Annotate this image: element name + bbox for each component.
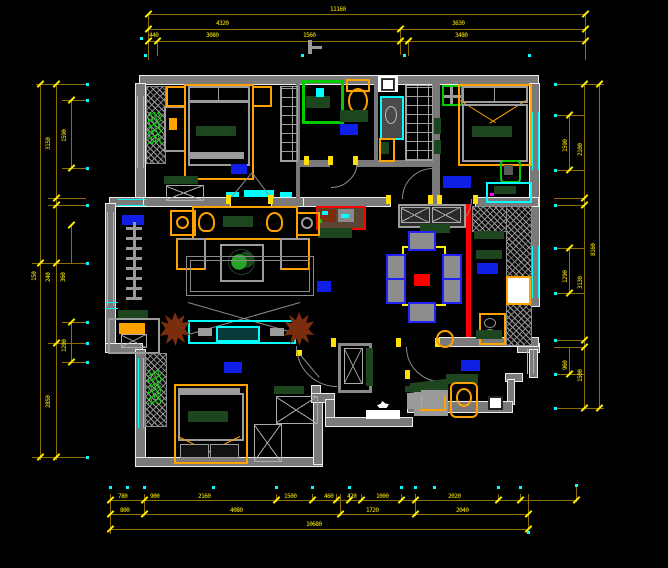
dresser-knob (169, 118, 177, 130)
nightstand (252, 86, 272, 107)
sofa-pillow (223, 216, 253, 227)
tv-speaker (270, 328, 284, 336)
dim-label: 3630 (452, 21, 464, 27)
dim-line (569, 115, 570, 170)
dining-chair (442, 278, 462, 304)
window (118, 199, 146, 206)
dim-label: 440 (149, 33, 158, 39)
dim-label: 4320 (216, 21, 228, 27)
dim-line (584, 84, 585, 408)
room-label (317, 281, 331, 292)
desk-dot (490, 193, 494, 196)
tv-speaker (198, 328, 212, 336)
dim-label: 960 (563, 361, 569, 370)
bed-pillow (188, 411, 228, 422)
water-heater-dial (456, 388, 472, 407)
bed-pillow (196, 126, 236, 136)
dim-label: 11160 (330, 7, 346, 13)
dim-label: 2020 (448, 494, 460, 500)
table-centerpiece (414, 274, 430, 286)
sofa-scroll (266, 212, 283, 232)
dim-line (408, 41, 409, 56)
wall-entry-step (312, 386, 320, 394)
dim-line (148, 41, 585, 42)
dim-point (212, 486, 215, 489)
dim-line (569, 347, 570, 374)
door-seat (407, 393, 421, 409)
room-label (443, 176, 471, 188)
counter-hatch (472, 206, 510, 232)
nightstand (166, 86, 186, 107)
dim-label: 4080 (230, 508, 242, 514)
room-label (461, 360, 480, 371)
low-cabinet-door (121, 334, 147, 348)
window (105, 302, 118, 309)
door-hinge-marker (473, 195, 478, 204)
dim-point (86, 204, 89, 207)
wall-entry-bottom (326, 418, 412, 426)
closet-shelving (405, 85, 433, 161)
bed-foot (190, 152, 244, 159)
dim-point (301, 54, 304, 57)
bench (166, 185, 204, 201)
dim-label: 1560 (303, 33, 315, 39)
dining-chair (442, 254, 462, 280)
dim-label: 150 (32, 272, 38, 281)
dim-label: 1200 (62, 340, 68, 352)
door-hinge-marker (428, 195, 433, 204)
sideboard-door (432, 207, 461, 223)
bed-foot-drawer (210, 444, 239, 458)
entry-door-panel (344, 348, 363, 384)
dim-point (433, 486, 436, 489)
dim-line (554, 347, 584, 348)
door-hinge-marker (353, 156, 358, 165)
dim-point (86, 321, 89, 324)
tv-shelf (280, 192, 292, 197)
dining-chair (386, 278, 406, 304)
dim-line (554, 205, 584, 206)
wall-red-kitchen (466, 204, 471, 340)
dim-point (143, 486, 146, 489)
dim-point (86, 456, 89, 459)
door-hinge-marker (386, 195, 391, 204)
dim-line (40, 84, 41, 460)
dim-point (86, 262, 89, 265)
dining-chair (408, 302, 436, 323)
entry-mat (366, 410, 400, 419)
dim-label: 460 (324, 494, 333, 500)
wall-mid (272, 198, 304, 206)
room-label (340, 124, 358, 135)
dim-line (71, 100, 72, 168)
dim-point (86, 99, 89, 102)
room-label (477, 263, 498, 274)
dim-point (497, 486, 500, 489)
low-cabinet-accent (119, 323, 145, 334)
dim-line (157, 41, 158, 56)
sofa-scroll (198, 212, 215, 232)
dim-line (554, 198, 584, 199)
plant-decor (148, 370, 161, 404)
closet-shelving (280, 86, 298, 162)
dim-label: 8160 (591, 244, 597, 256)
dim-point (554, 373, 557, 376)
shelf-item (434, 140, 441, 154)
countertop (476, 330, 502, 339)
shoe-cabinet-glint (341, 214, 349, 218)
door-hinge-marker (437, 195, 442, 204)
dim-line (569, 248, 570, 293)
side-table-lamp (176, 216, 189, 229)
dim-label: 1500 (578, 370, 584, 382)
cabinet-handle (420, 396, 446, 411)
dim-label: 780 (118, 494, 127, 500)
window (138, 358, 144, 428)
dim-label: 1290 (563, 271, 569, 283)
dim-label: 800 (120, 508, 129, 514)
dim-label: 2100 (578, 144, 584, 156)
window (527, 349, 534, 374)
shelf-item (434, 118, 441, 134)
dim-label: 1720 (366, 508, 378, 514)
countertop (476, 250, 502, 259)
dim-point (554, 204, 557, 207)
door-hinge-marker (304, 156, 309, 165)
dim-point (86, 361, 89, 364)
wall-br-step2 (508, 380, 514, 404)
dim-label: 1000 (376, 494, 388, 500)
desk-chair-seat (504, 165, 513, 175)
dim-label: 3130 (578, 277, 584, 289)
dim-point (414, 486, 417, 489)
dim-label: 3080 (206, 33, 218, 39)
wall-mid (304, 198, 390, 206)
door-hinge-marker (328, 156, 333, 165)
dim-point (554, 407, 557, 410)
door-seat-top (405, 386, 421, 392)
dim-label: 10680 (306, 522, 322, 528)
window (532, 246, 539, 298)
floor-plant (160, 312, 190, 346)
plant-decor (148, 112, 161, 144)
dim-label: 1590 (563, 140, 569, 152)
dim-point (140, 37, 143, 40)
room-label (231, 164, 247, 174)
dim-point (126, 486, 129, 489)
laundry-shelf (381, 142, 389, 154)
dim-line (62, 168, 86, 169)
dim-label: 3150 (46, 138, 52, 150)
dim-point (403, 54, 406, 57)
section-marker (312, 46, 322, 49)
stove-burner (484, 318, 496, 328)
dim-point (575, 484, 578, 487)
dim-label: 2040 (456, 508, 468, 514)
washer-drum (385, 106, 397, 124)
vanity (340, 110, 368, 122)
dim-line (110, 514, 528, 515)
kettle (436, 330, 454, 348)
dining-chair (386, 254, 406, 280)
dim-point (275, 486, 278, 489)
dim-label: 2850 (46, 396, 52, 408)
dim-line (110, 500, 576, 501)
dim-label: 420 (347, 494, 356, 500)
bed-foot-drawer (180, 444, 209, 458)
shoe-cabinet-glint (322, 211, 328, 215)
shelf (274, 386, 304, 394)
room-label (224, 362, 242, 373)
door-hinge-marker (405, 370, 410, 379)
closet-box (254, 424, 282, 462)
dim-line (62, 100, 86, 101)
dim-point (554, 169, 557, 172)
dim-point (86, 83, 89, 86)
dim-label: 3480 (455, 33, 467, 39)
dim-line (56, 84, 57, 460)
dim-line (62, 362, 86, 363)
dim-line (62, 322, 86, 323)
side-table-lamp (301, 217, 313, 229)
threshold-symbol (377, 401, 389, 408)
dim-point (348, 486, 351, 489)
radiator (126, 222, 142, 300)
hall-rug (318, 228, 352, 238)
dim-point (528, 54, 531, 57)
dim-point (311, 486, 314, 489)
dim-line (148, 14, 585, 15)
dining-chair (408, 231, 436, 251)
dim-line (585, 14, 586, 60)
dim-point (554, 247, 557, 250)
dim-point (519, 486, 522, 489)
dim-point (109, 486, 112, 489)
door-hinge-marker (268, 195, 273, 204)
bed-headboard (462, 86, 528, 103)
shower-shelf (306, 96, 330, 108)
bed-pillow (472, 126, 512, 137)
dim-point (554, 339, 557, 342)
cad-floorplan-canvas[interactable]: 11160 4320 3630 440 3080 1560 3480 3150 … (0, 0, 668, 568)
dim-point (400, 486, 403, 489)
dim-label: 240 (46, 273, 52, 282)
dim-line (36, 84, 86, 85)
window (107, 212, 114, 306)
dim-label: 360 (61, 273, 67, 282)
dim-tick (573, 496, 581, 504)
window (137, 96, 144, 168)
window (532, 112, 539, 170)
outlet-box (488, 396, 503, 410)
dim-point (554, 83, 557, 86)
bench-cushion (164, 176, 198, 184)
dim-line (110, 529, 528, 530)
entry-side-panel (366, 348, 373, 386)
door-hinge-marker (331, 338, 336, 347)
dim-label: 1500 (284, 494, 296, 500)
countertop (474, 231, 504, 239)
dim-line (554, 340, 584, 341)
door-hinge-marker (396, 338, 401, 347)
dim-label: 2160 (198, 494, 210, 500)
dim-line (71, 322, 72, 362)
tv-screen (216, 326, 260, 342)
switch-box (381, 78, 395, 91)
dim-point (554, 114, 557, 117)
dim-point (86, 167, 89, 170)
dim-point (86, 342, 89, 345)
dim-line (148, 29, 585, 30)
dim-point (527, 531, 530, 534)
door-hinge-marker (226, 195, 231, 204)
dim-label: 1590 (62, 130, 68, 142)
shower-head (316, 88, 324, 97)
desk-items (494, 186, 516, 194)
dim-line (599, 84, 600, 408)
closet-box (276, 396, 318, 424)
rug-outline-inner (190, 260, 310, 292)
dim-label: 900 (150, 494, 159, 500)
dim-point (554, 292, 557, 295)
fridge (506, 276, 531, 305)
dim-point (144, 54, 147, 57)
dim-line (71, 225, 72, 263)
sideboard-door (401, 207, 430, 223)
